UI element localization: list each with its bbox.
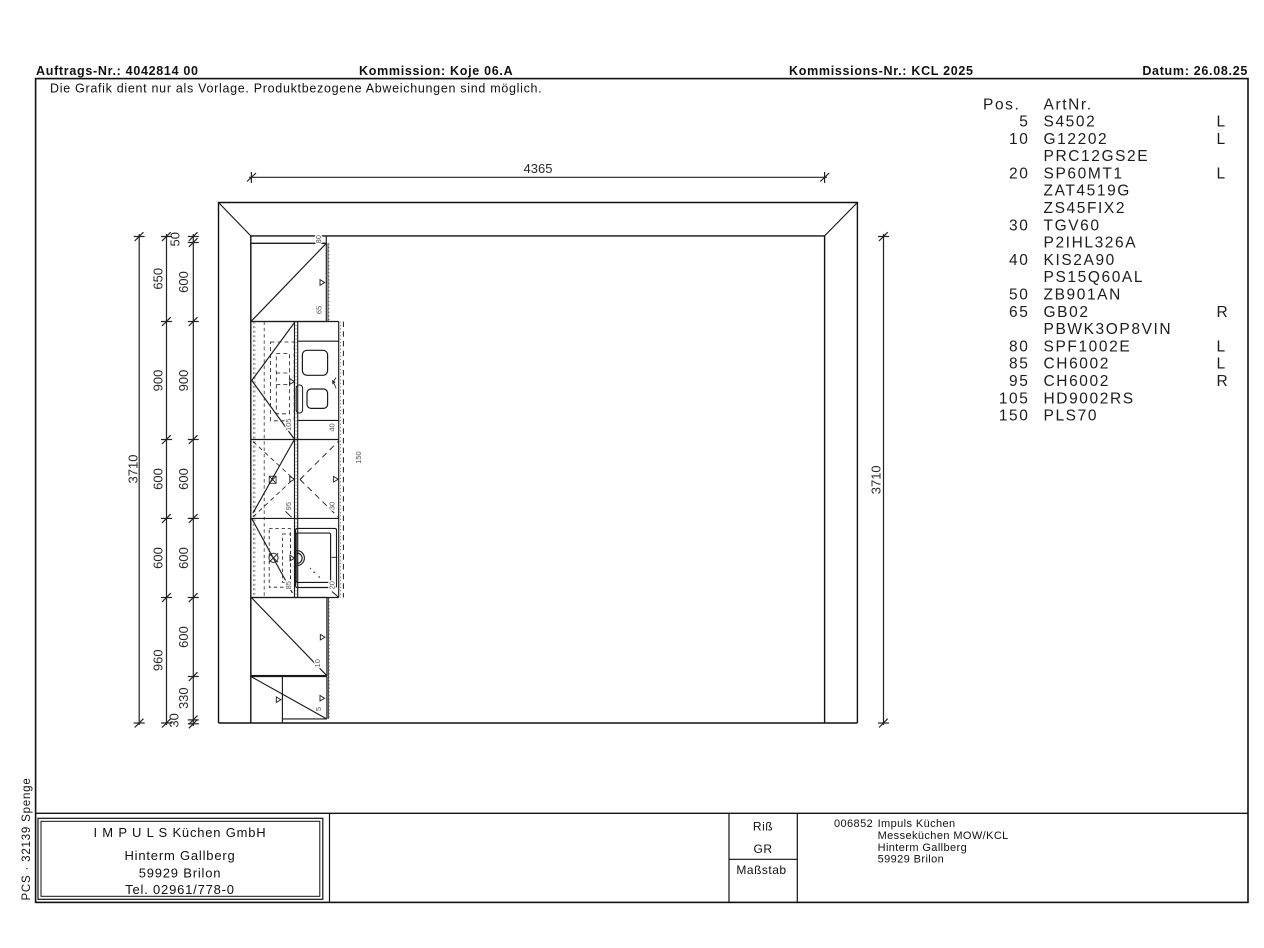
svg-text:Hinterm Gallberg: Hinterm Gallberg xyxy=(878,842,968,854)
svg-text:CH6002: CH6002 xyxy=(1044,373,1110,390)
svg-text:Pos.: Pos. xyxy=(983,97,1020,114)
svg-text:600: 600 xyxy=(150,547,165,569)
svg-text:PS15Q60AL: PS15Q60AL xyxy=(1044,269,1145,286)
svg-text:KIS2A90: KIS2A90 xyxy=(1044,252,1116,269)
svg-text:600: 600 xyxy=(150,468,165,490)
svg-text:S4502: S4502 xyxy=(1044,114,1097,131)
svg-text:GB02: GB02 xyxy=(1044,304,1090,321)
svg-text:ArtNr.: ArtNr. xyxy=(1044,97,1093,114)
svg-text:ZAT4519G: ZAT4519G xyxy=(1044,183,1131,200)
svg-text:10: 10 xyxy=(1009,131,1029,148)
svg-text:PLS70: PLS70 xyxy=(1044,408,1099,425)
svg-text:I M P U L S Küchen GmbH: I M P U L S Küchen GmbH xyxy=(93,825,266,840)
svg-text:85: 85 xyxy=(1009,356,1029,373)
svg-text:50: 50 xyxy=(168,232,183,246)
svg-text:PBWK3OP8VIN: PBWK3OP8VIN xyxy=(1044,321,1173,338)
svg-text:L: L xyxy=(1217,338,1227,355)
svg-text:Datum: 26.08.25: Datum: 26.08.25 xyxy=(1142,64,1248,78)
svg-text:Tel. 02961/778-0: Tel. 02961/778-0 xyxy=(125,882,235,897)
svg-text:006852: 006852 xyxy=(834,818,873,830)
svg-text:600: 600 xyxy=(176,271,191,293)
svg-text:3710: 3710 xyxy=(125,455,140,484)
svg-text:SPF1002E: SPF1002E xyxy=(1044,338,1132,355)
svg-text:3710: 3710 xyxy=(869,465,884,494)
svg-text:20: 20 xyxy=(328,581,337,589)
svg-text:L: L xyxy=(1217,165,1227,182)
svg-text:20: 20 xyxy=(1009,165,1029,182)
svg-text:GR: GR xyxy=(754,842,773,856)
svg-text:CH6002: CH6002 xyxy=(1044,356,1110,373)
svg-text:Riß: Riß xyxy=(753,820,773,834)
svg-text:150: 150 xyxy=(354,451,363,464)
svg-text:ZS45FIX2: ZS45FIX2 xyxy=(1044,200,1127,217)
svg-text:80: 80 xyxy=(314,235,323,243)
svg-text:ZB901AN: ZB901AN xyxy=(1044,287,1122,304)
svg-text:TGV60: TGV60 xyxy=(1044,217,1101,234)
svg-text:Maßstab: Maßstab xyxy=(736,863,786,877)
svg-text:PCS · 32139 Spenge: PCS · 32139 Spenge xyxy=(21,777,33,900)
svg-text:59929 Brilon: 59929 Brilon xyxy=(139,866,222,881)
svg-text:PRC12GS2E: PRC12GS2E xyxy=(1044,148,1150,165)
svg-text:30: 30 xyxy=(1009,217,1029,234)
svg-text:R: R xyxy=(1217,373,1230,390)
svg-text:650: 650 xyxy=(150,268,165,290)
svg-text:5: 5 xyxy=(314,707,323,711)
svg-text:900: 900 xyxy=(176,370,191,392)
svg-text:960: 960 xyxy=(150,649,165,671)
svg-text:59929 Brilon: 59929 Brilon xyxy=(878,854,945,866)
svg-text:L: L xyxy=(1217,131,1227,148)
svg-text:330: 330 xyxy=(176,687,191,709)
svg-text:600: 600 xyxy=(176,468,191,490)
svg-text:Messeküchen MOW/KCL: Messeküchen MOW/KCL xyxy=(878,830,1009,842)
svg-text:10: 10 xyxy=(313,659,322,667)
svg-text:5: 5 xyxy=(1019,114,1029,131)
svg-text:30: 30 xyxy=(167,713,182,727)
svg-text:900: 900 xyxy=(150,370,165,392)
svg-text:150: 150 xyxy=(999,408,1030,425)
svg-text:Auftrags-Nr.: 4042814 00: Auftrags-Nr.: 4042814 00 xyxy=(36,64,199,78)
svg-text:Kommissions-Nr.: KCL 2025: Kommissions-Nr.: KCL 2025 xyxy=(789,64,974,78)
svg-text:65: 65 xyxy=(1009,304,1029,321)
svg-text:P2IHL326A: P2IHL326A xyxy=(1044,235,1138,252)
svg-text:G12202: G12202 xyxy=(1044,131,1109,148)
svg-text:105: 105 xyxy=(999,390,1030,407)
svg-text:R: R xyxy=(1217,304,1230,321)
svg-text:80: 80 xyxy=(1009,338,1029,355)
svg-text:50: 50 xyxy=(1009,287,1029,304)
svg-text:40: 40 xyxy=(1009,252,1029,269)
svg-text:Hinterm Gallberg: Hinterm Gallberg xyxy=(124,848,235,863)
svg-text:Kommission: Koje 06.A: Kommission: Koje 06.A xyxy=(359,64,513,78)
svg-text:105: 105 xyxy=(284,418,293,431)
svg-text:4365: 4365 xyxy=(524,161,553,176)
svg-text:30: 30 xyxy=(328,502,337,510)
svg-text:HD9002RS: HD9002RS xyxy=(1044,390,1135,407)
svg-text:Impuls Küchen: Impuls Küchen xyxy=(878,818,956,830)
svg-text:SP60MT1: SP60MT1 xyxy=(1044,165,1124,182)
svg-text:Die Grafik dient nur als Vorla: Die Grafik dient nur als Vorlage. Produk… xyxy=(50,82,542,96)
svg-text:40: 40 xyxy=(328,423,337,431)
svg-text:600: 600 xyxy=(176,547,191,569)
svg-text:L: L xyxy=(1217,114,1227,131)
svg-text:L: L xyxy=(1217,356,1227,373)
svg-text:95: 95 xyxy=(1009,373,1029,390)
svg-text:600: 600 xyxy=(176,626,191,648)
svg-text:95: 95 xyxy=(284,502,293,510)
svg-text:85: 85 xyxy=(284,581,293,589)
svg-text:65: 65 xyxy=(314,306,323,314)
